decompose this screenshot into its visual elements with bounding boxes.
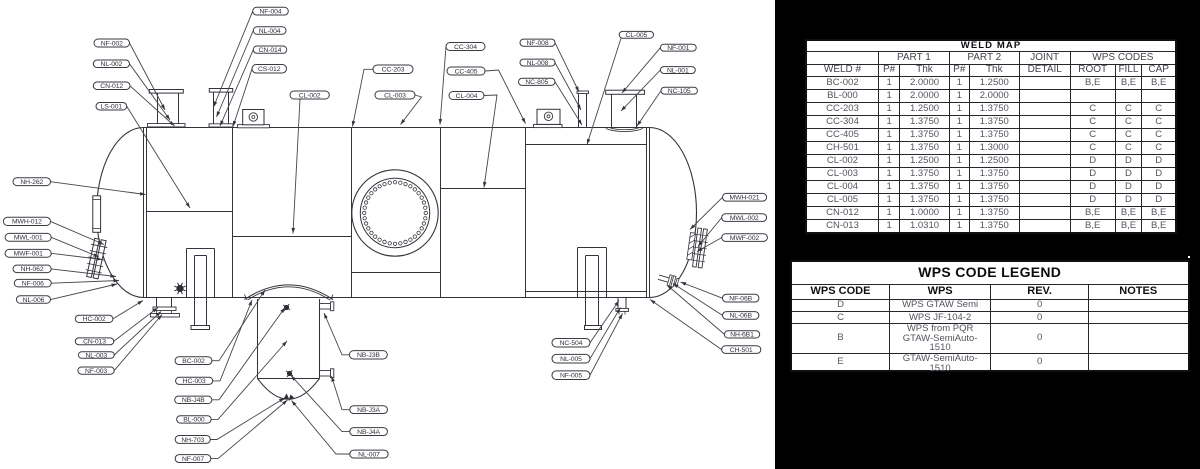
svg-text:CL-003: CL-003 [384,92,406,99]
svg-text:MWL-001: MWL-001 [14,235,43,242]
svg-text:NC-504: NC-504 [560,340,583,347]
svg-text:CN-013: CN-013 [83,339,106,346]
svg-text:CS-012: CS-012 [258,66,281,73]
svg-text:MWH-021: MWH-021 [730,195,760,202]
svg-text:CN-012: CN-012 [100,83,123,90]
svg-text:CN-014: CN-014 [259,47,282,54]
svg-text:MWH-012: MWH-012 [12,219,42,226]
svg-text:NL-004: NL-004 [259,28,281,35]
svg-text:HC-003: HC-003 [183,378,206,385]
svg-text:CC-304: CC-304 [454,44,477,51]
svg-text:NF-004: NF-004 [259,8,281,15]
svg-text:NL-003: NL-003 [85,352,107,359]
svg-text:NB-J4A: NB-J4A [357,429,380,436]
svg-text:CC-405: CC-405 [455,68,478,75]
svg-text:MWL-002: MWL-002 [730,215,759,222]
svg-text:LS-001: LS-001 [101,104,123,111]
svg-text:NF-005: NF-005 [560,373,582,380]
svg-text:BC-002: BC-002 [182,358,205,365]
svg-text:NF-003: NF-003 [85,368,107,375]
svg-text:CL-002: CL-002 [299,92,321,99]
svg-text:NL-06B: NL-06B [729,313,752,320]
svg-text:NF-007: NF-007 [182,456,204,463]
svg-text:NL-008: NL-008 [527,60,549,67]
svg-text:CL-005: CL-005 [626,32,648,39]
svg-text:NL-001: NL-001 [667,67,689,74]
svg-text:NL-002: NL-002 [101,61,123,68]
svg-text:NF-008: NF-008 [526,40,548,47]
svg-text:NF-006: NF-006 [22,280,44,287]
svg-text:NH-262: NH-262 [20,179,43,186]
svg-text:CL-004: CL-004 [456,93,478,100]
svg-text:NF-001: NF-001 [667,45,689,52]
svg-text:NH-703: NH-703 [181,437,204,444]
svg-text:NH-6B1: NH-6B1 [730,332,754,339]
svg-text:NC-805: NC-805 [525,79,548,86]
svg-text:NF-06B: NF-06B [729,295,752,302]
svg-text:NL-006: NL-006 [23,297,45,304]
svg-text:NB-J3B: NB-J3B [357,352,380,359]
svg-text:NC-105: NC-105 [668,88,691,95]
svg-text:NL-005: NL-005 [560,356,582,363]
svg-text:MWF-001: MWF-001 [14,251,43,258]
svg-text:CC-203: CC-203 [382,67,405,74]
svg-text:NB-J3A: NB-J3A [357,407,380,414]
svg-text:MWF-002: MWF-002 [730,235,759,242]
svg-text:NB-J4B: NB-J4B [182,397,205,404]
svg-text:NL-007: NL-007 [358,451,380,458]
svg-text:BL-000: BL-000 [183,417,205,424]
svg-text:HC-002: HC-002 [83,316,106,323]
svg-text:NH-062: NH-062 [21,266,44,273]
svg-text:NF-002: NF-002 [101,40,123,47]
svg-text:CH-501: CH-501 [730,347,753,354]
